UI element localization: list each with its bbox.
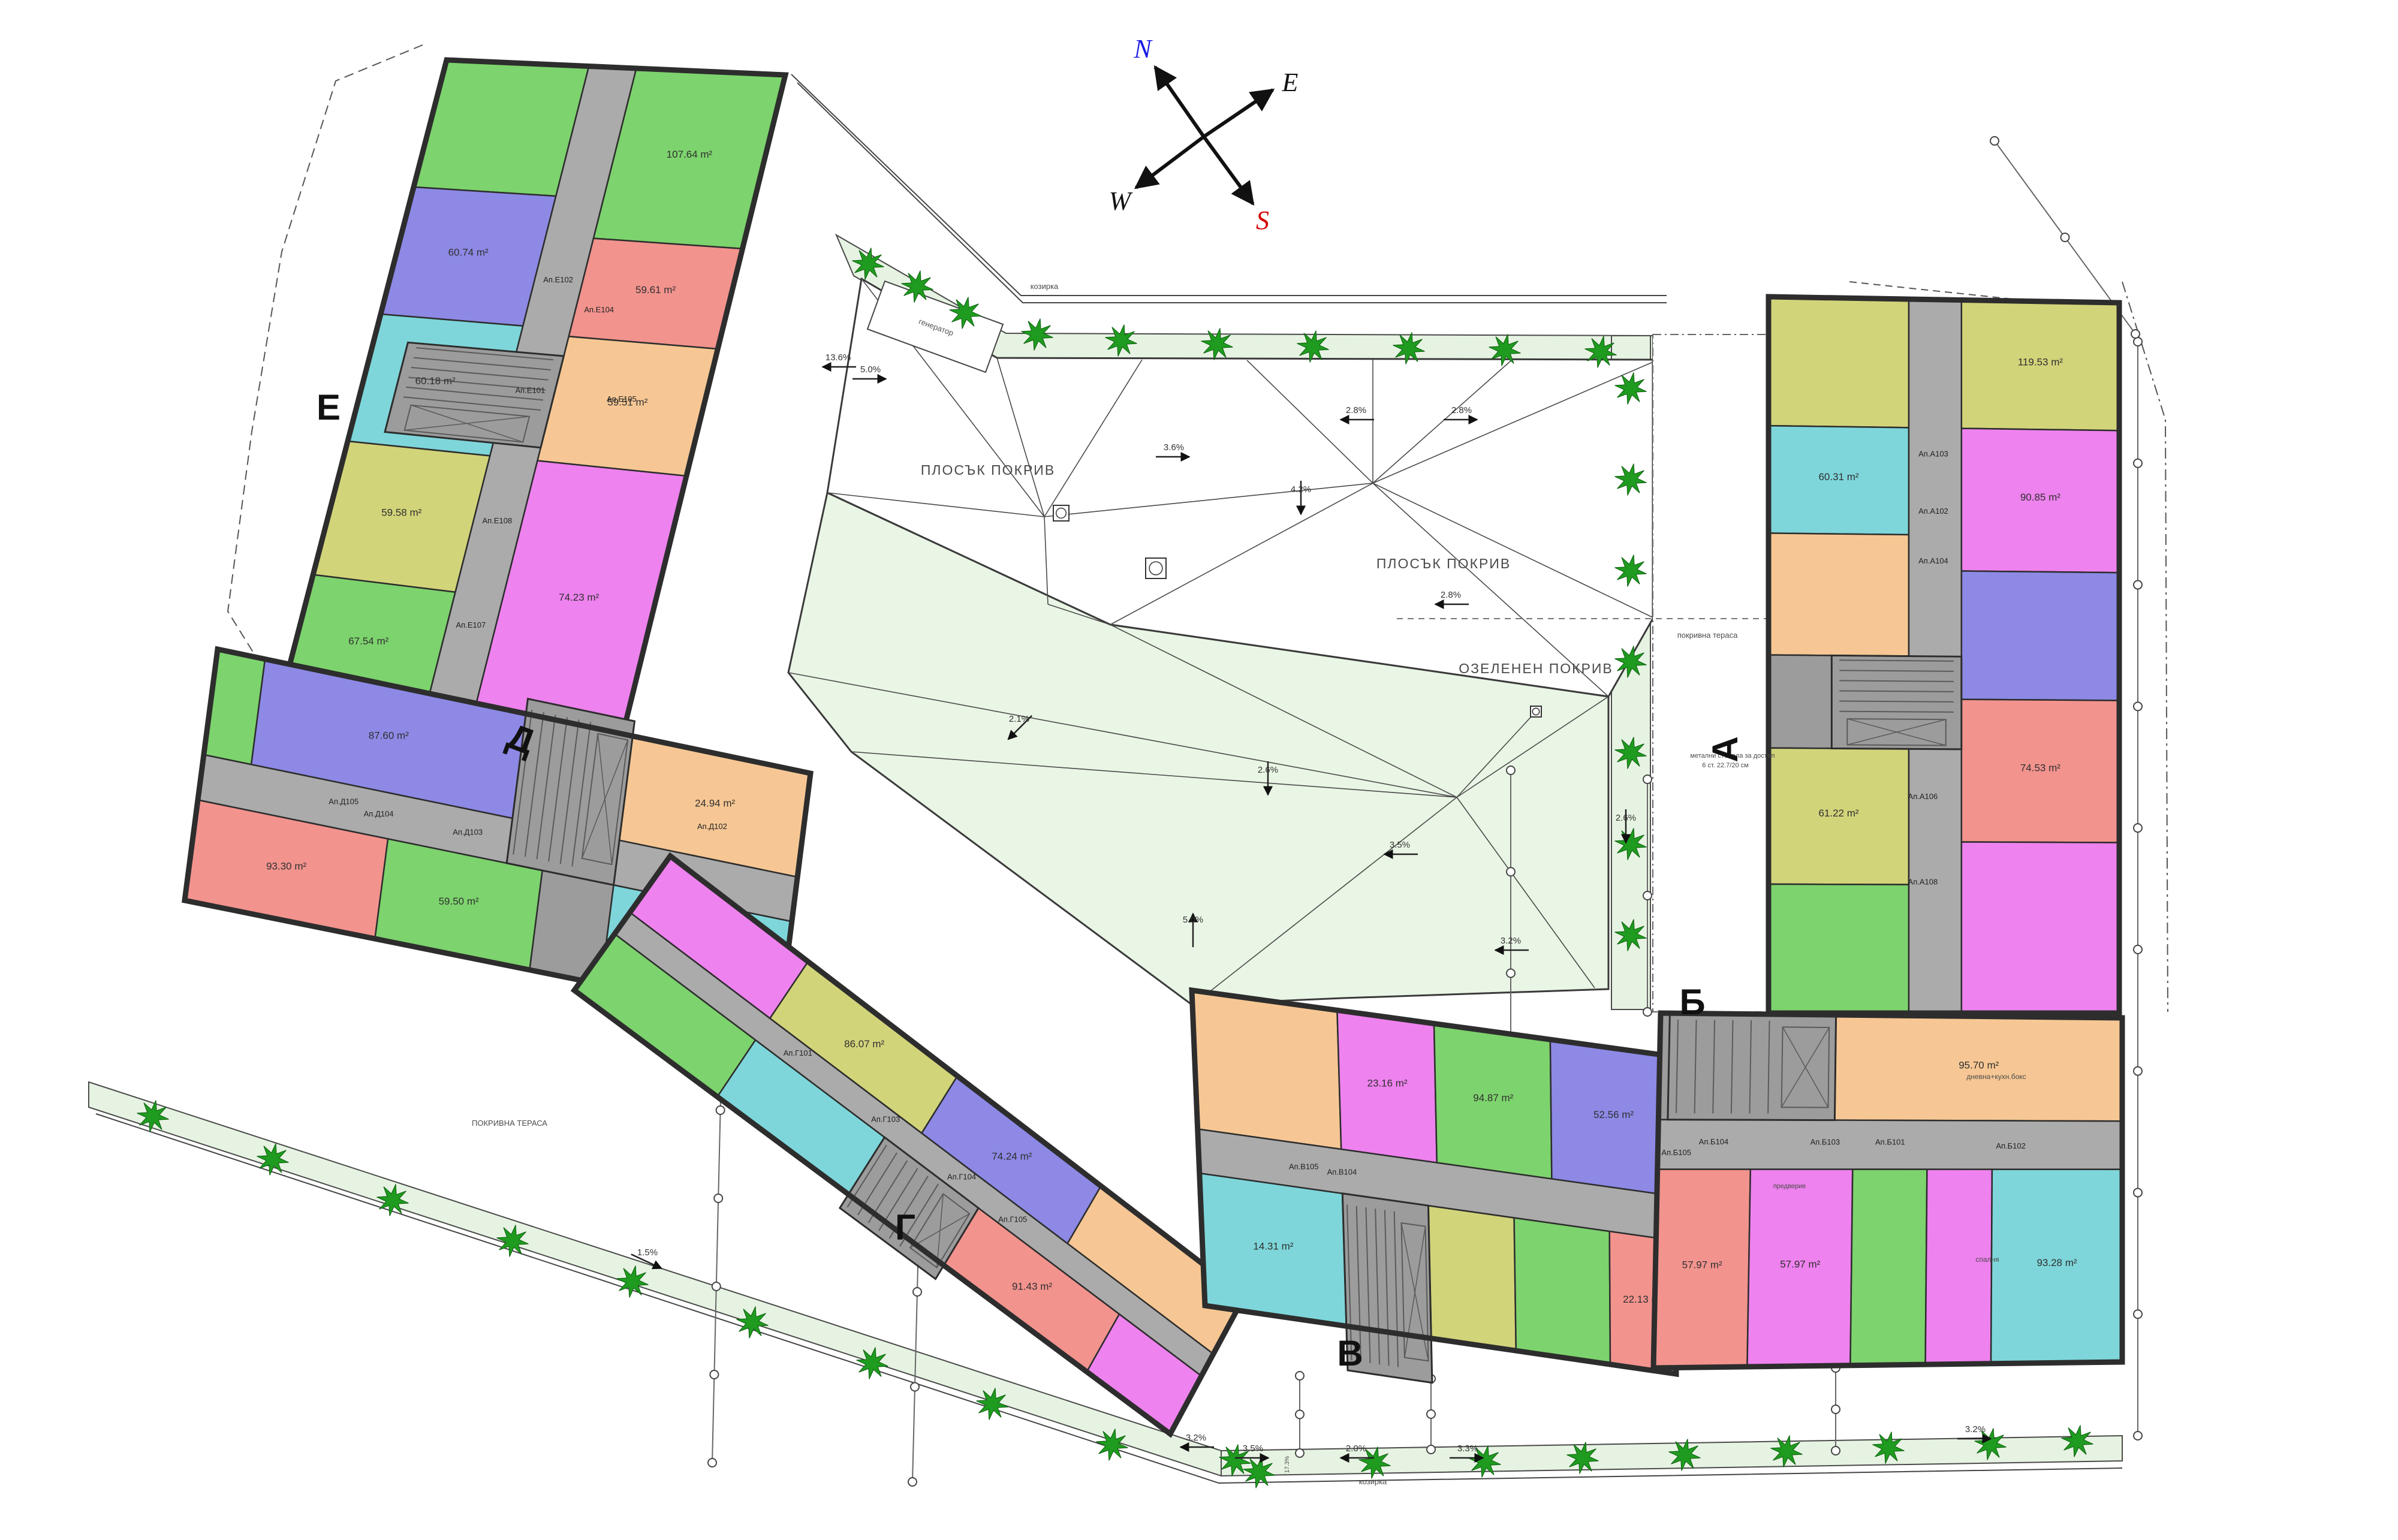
apartment-number-label: Ап.Б105 [1661,1148,1691,1157]
apartment-unit [1926,1170,1992,1365]
compass-letter-W: W [1109,186,1133,216]
apartment-number-label: Ап.Д104 [364,809,394,818]
apartment-number-label: Ап.Г105 [998,1214,1027,1223]
area-label: 60.31 m² [1818,471,1858,483]
annotation-text: 17.3% [1284,1456,1291,1473]
grid-marker [913,1288,921,1296]
slope-percent-label: 2.0% [1346,1443,1366,1454]
area-label: 67.54 m² [348,635,388,647]
slope-percent-label: 5.0% [1183,915,1203,925]
floor-plan-page: генератор 60.74 m²60.18 m²59.58 m²67.54 … [0,0,2398,1540]
roof-terrace [1653,334,1769,1012]
annotation-text: ОЗЕЛЕНЕН ПОКРИВ [1459,661,1613,676]
compass-arrow-E [1204,90,1273,137]
slope-percent-label: 13.6% [826,352,851,363]
wing-А: 60.31 m²61.22 m²119.53 m²90.85 m²74.53 m… [1769,297,2119,1013]
slope-percent-label: 3.6% [1164,442,1184,453]
apartment-number-label: Ап.Д105 [329,797,359,806]
stair-core [1668,1013,1836,1120]
floor-plan-canvas: генератор 60.74 m²60.18 m²59.58 m²67.54 … [0,0,2398,1540]
slope-percent-label: 4.2% [1291,484,1311,495]
compass-letter-E: E [1282,68,1299,97]
annotation-text: дневна+кухн.бокс [1966,1072,2026,1081]
annotation-text: 6 ст. 22.7/20 см [1702,762,1748,769]
grid-marker [2134,581,2142,589]
apartment-number-label: Ап.Д102 [697,822,727,831]
grid-marker [2134,459,2142,468]
apartment-number-label: Ап.А103 [1918,450,1948,459]
stair-step [1839,712,1953,712]
compass-rose: NEWS [1109,34,1299,235]
grid-marker [1990,137,1999,145]
grid-marker [2134,824,2142,832]
compass-arrow-W [1136,137,1204,188]
annotation-text: спалня [1975,1255,1999,1264]
dimension-chain [2134,337,2142,1440]
apartment-number-label: Ап.Е102 [543,275,573,284]
terrace-outline [2122,282,2168,1012]
area-label: 93.30 m² [266,860,306,872]
area-label: 59.58 m² [381,507,421,519]
apartment-number-label: Ап.Е104 [584,305,614,314]
slope-percent-label: 2.1% [1009,714,1029,724]
section-letter-Б: Б [1679,982,1705,1022]
grid-marker [2134,337,2142,346]
apartment-number-label: Ап.Г104 [947,1172,976,1181]
grid-marker [1296,1372,1304,1380]
area-label: 86.07 m² [844,1038,884,1050]
annotation-text: козирка [1359,1477,1387,1486]
area-label: 23.16 m² [1367,1077,1408,1089]
grid-marker [1296,1411,1304,1419]
area-label: 74.53 m² [2020,762,2060,773]
slope-percent-label: 3.2% [1186,1433,1206,1443]
slope-percent-label: 3.5% [1390,840,1410,850]
area-label: 52.56 m² [1593,1109,1634,1120]
slope-percent-label: 2.8% [1451,405,1472,415]
area-label: 60.74 m² [448,247,489,258]
grid-marker [2134,1431,2142,1440]
grid-marker [2134,1310,2142,1318]
apartment-number-label: Ап.Е101 [516,386,546,395]
apartment-number-label: Ап.Д103 [453,827,483,836]
grid-marker [1831,1405,1840,1414]
grid-marker [1427,1410,1435,1418]
compass-letter-S: S [1256,206,1269,235]
area-label: 59.61 m² [635,284,676,296]
slope-percent-label: 2.8% [1441,590,1461,600]
grid-marker [1643,775,1652,783]
area-label: 57.97 m² [1780,1259,1820,1270]
compass-arrow-N [1155,67,1204,137]
compass-letter-N: N [1133,34,1153,64]
apartment-number-label: Ап.Б103 [1810,1138,1840,1147]
slope-percent-label: 5.0% [860,364,881,375]
grid-marker [708,1458,716,1467]
apartment-number-label: Ап.Г103 [871,1115,900,1124]
slope-percent-label: 3.2% [1501,936,1521,946]
canopy-line [791,74,1667,296]
apartment-unit [1769,297,1909,427]
apartment-number-label: Ап.Г101 [784,1048,812,1057]
area-label: 74.23 m² [559,592,599,603]
grid-marker [2134,1188,2142,1197]
area-label: 107.64 m² [667,149,713,160]
grid-marker [1831,1446,1840,1455]
grid-marker [1507,867,1515,876]
grid-marker [1296,1449,1304,1457]
dimension-chain [1296,1372,1304,1457]
grid-marker [716,1106,725,1114]
roof-drain-icon [1146,558,1166,578]
apartment-unit [1962,571,2119,701]
section-letter-В: В [1337,1333,1363,1373]
section-letter-Е: Е [317,387,341,427]
area-label: 60.18 m² [415,375,456,387]
area-label: 95.70 m² [1959,1059,1999,1071]
grid-marker [1643,891,1652,900]
annotation-text: ПЛОСЪК ПОКРИВ [1376,556,1511,571]
grid-marker [710,1370,718,1379]
grid-marker [1507,969,1515,978]
slope-percent-label: 2.6% [1616,813,1636,823]
annotation-text: предверие [1773,1183,1806,1190]
annotation-text: покривна тераса [1677,631,1738,640]
apartment-unit [1514,1218,1610,1365]
annotation-text: ПОКРИВНА ТЕРАСА [472,1119,547,1128]
grid-marker [2134,1067,2142,1075]
area-label: 74.24 m² [992,1151,1032,1162]
area-label: 87.60 m² [369,730,409,742]
grid-marker [1643,1008,1652,1016]
slope-percent-label: 2.6% [1258,765,1278,775]
apartment-unit [1850,1170,1927,1366]
area-label: 57.97 m² [1682,1259,1722,1271]
apartment-number-label: Ап.А104 [1918,556,1948,565]
area-label: 119.53 m² [2018,357,2063,368]
apartment-number-label: Ап.Б102 [1996,1141,2026,1150]
grid-marker [712,1282,721,1291]
grid-marker [1427,1445,1435,1454]
apartment-unit [1192,990,1341,1149]
apartment-unit [1429,1206,1516,1351]
stair-step [1839,701,1953,702]
annotation-text: ПЛОСЪК ПОКРИВ [921,462,1055,478]
slope-percent-label: 3.2% [1965,1424,1986,1434]
compass: NEWS [1109,34,1299,235]
area-label: 59.50 m² [439,896,479,907]
area-label: 90.85 m² [2020,492,2060,503]
slope-percent-label: 2.8% [1346,405,1366,415]
dimension-chain [1427,1375,1435,1454]
apartment-number-label: Ап.Е108 [483,516,513,525]
slope-percent-label: 3.5% [1243,1443,1263,1454]
slope-percent-label: 3.3% [1457,1443,1478,1454]
wing-В: 23.16 m²94.87 m²52.56 m²14.31 m²22.13 m²… [1192,990,1676,1383]
grid-marker [2134,702,2142,710]
apartment-number-label: Ап.Б101 [1875,1138,1905,1147]
area-label: 14.31 m² [1253,1241,1293,1252]
grid-marker [2131,330,2140,338]
wing-Б: 95.70 m²57.97 m²57.97 m²93.28 m²Ап.Б101А… [1653,1013,2122,1368]
grid-marker [1507,766,1515,774]
slope-percent-label: 1.5% [637,1247,658,1258]
apartment-number-label: Ап.А108 [1908,878,1938,887]
area-label: 94.87 m² [1473,1092,1513,1104]
apartment-unit [1769,533,1909,656]
section-letter-А: А [1705,736,1745,762]
grid-marker [2061,233,2069,242]
grid-marker [911,1383,919,1391]
area-label: 93.28 m² [2037,1257,2077,1268]
area-label: 61.22 m² [1818,807,1858,819]
area-label: 91.43 m² [1012,1281,1052,1292]
apartment-number-label: Ап.Е105 [607,394,637,403]
apartment-number-label: Ап.А102 [1918,507,1948,516]
apartment-number-label: Ап.А106 [1908,792,1938,801]
area-label: 24.94 m² [695,798,735,809]
grid-marker [908,1478,917,1486]
apartment-number-label: Ап.В105 [1289,1162,1319,1171]
section-letter-Г: Г [895,1207,915,1247]
annotation-text: козирка [1031,282,1059,291]
apartment-number-label: Ап.В104 [1327,1167,1357,1176]
compass-arrow-S [1204,137,1253,204]
apartment-unit [1769,884,1909,1013]
apartment-number-label: Ап.Е107 [456,620,486,629]
grid-marker [2134,945,2142,954]
roof-drain-icon [1053,505,1069,521]
apartment-number-label: Ап.Б104 [1699,1137,1729,1146]
wing-Е: 60.74 m²60.18 m²59.58 m²67.54 m²107.64 m… [282,60,785,743]
apartment-unit [1962,842,2119,1014]
grid-marker [714,1194,722,1203]
